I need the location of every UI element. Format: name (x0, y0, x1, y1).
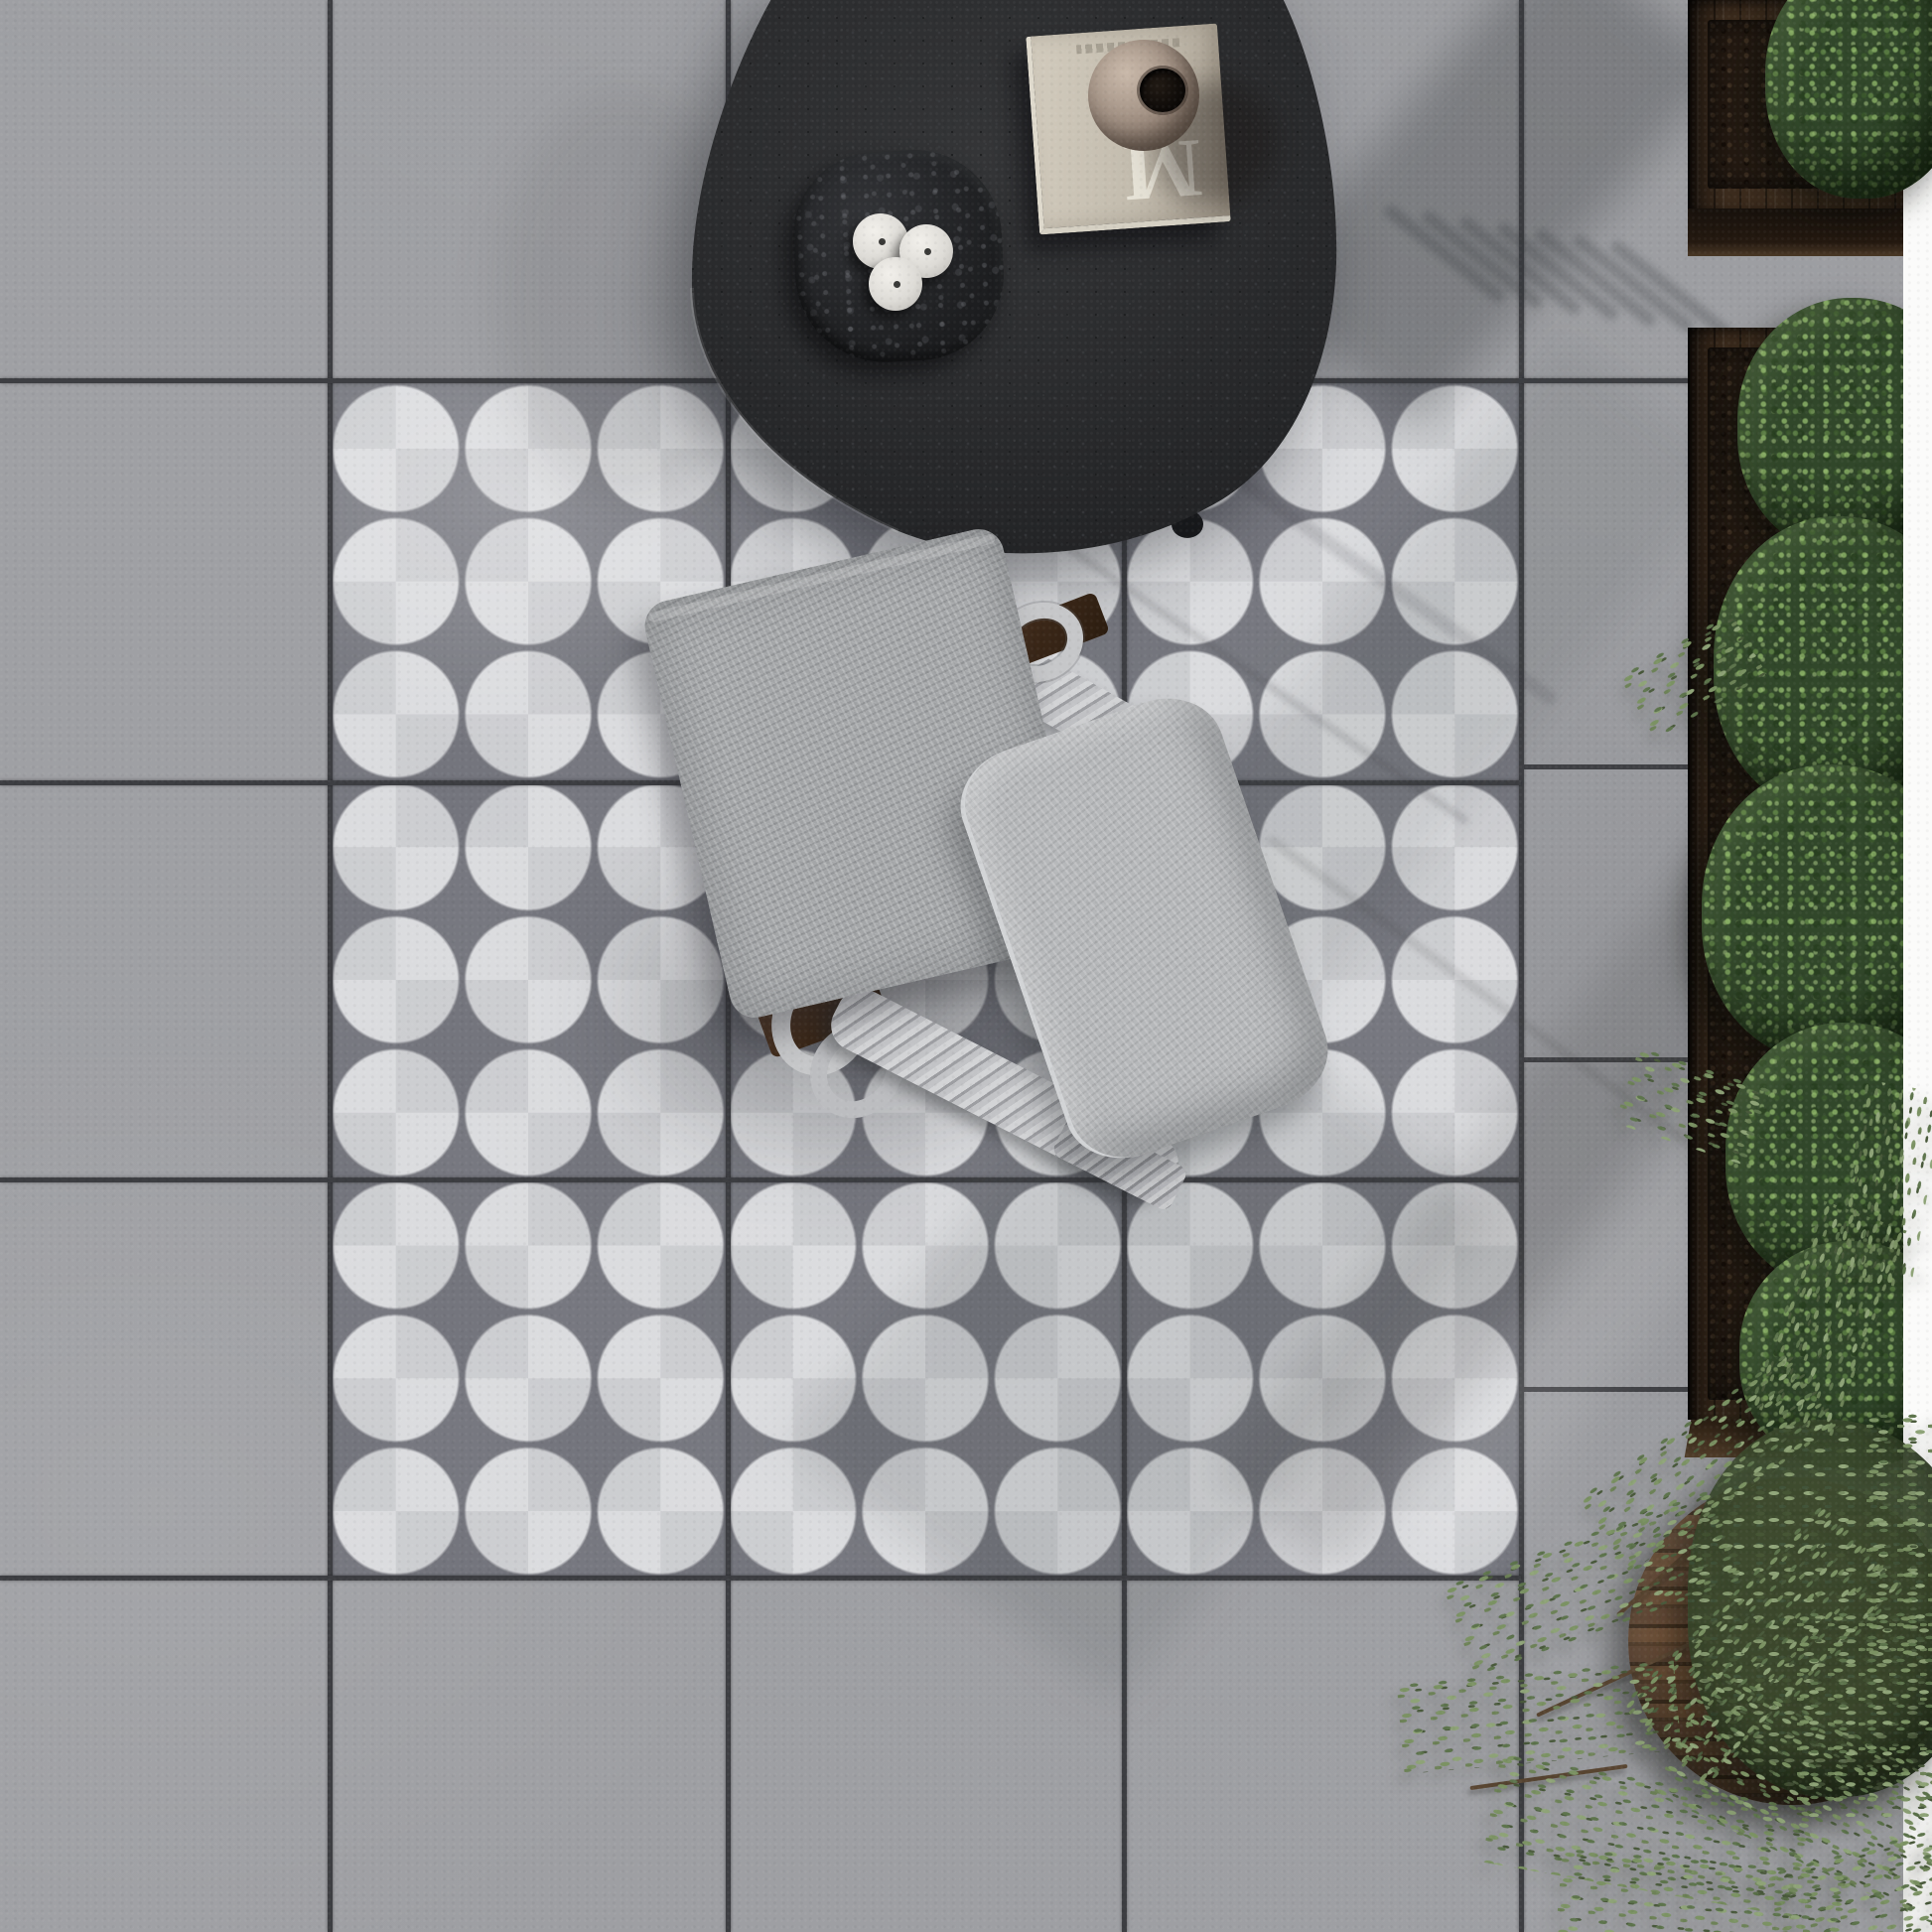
candle-3 (869, 257, 922, 311)
vase-opening (1140, 69, 1185, 112)
hedge-bush-3 (1702, 764, 1932, 1062)
patio-scene: E M (0, 0, 1932, 1932)
grout-vertical-1 (328, 0, 333, 1932)
grout-horizontal-4 (0, 1576, 1521, 1581)
table-top-shape (645, 0, 1360, 596)
planter-box-top-side-face (1688, 208, 1903, 256)
coffee-table (645, 0, 1360, 596)
sphere-vase (1088, 40, 1199, 151)
grout-right-col-1 (1521, 764, 1705, 769)
olive-sprig-12 (1866, 1410, 1932, 1658)
